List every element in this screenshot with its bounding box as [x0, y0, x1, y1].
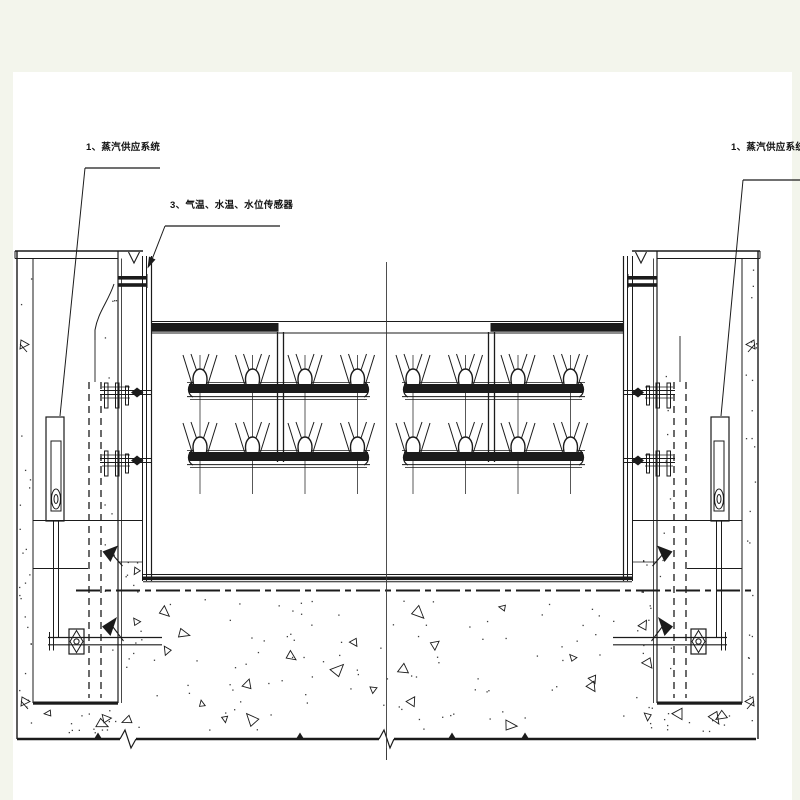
nozzle-dome — [246, 437, 260, 452]
nozzle-dome — [459, 437, 473, 452]
nozzle-dome — [511, 437, 525, 452]
sprayer-pipe — [189, 384, 368, 393]
label-sensors: 3、气温、水温、水位传感器 — [170, 199, 293, 211]
nozzle-dome — [406, 437, 420, 452]
nozzle-dome — [351, 437, 365, 452]
nozzle-dome — [406, 369, 420, 384]
sprayer-pipe — [189, 452, 368, 461]
nozzle-dome — [459, 369, 473, 384]
sprayer-pipe — [404, 384, 583, 393]
nozzle-dome — [564, 437, 578, 452]
label-steam-supply-right: 1、蒸汽供应系统 — [731, 141, 800, 153]
nozzle-dome — [298, 369, 312, 384]
sprayer-pipe — [404, 452, 583, 461]
nozzle-dome — [511, 369, 525, 384]
nozzle-dome — [193, 437, 207, 452]
nozzle-dome — [351, 369, 365, 384]
engineering-drawing-page: 1、蒸汽供应系统 3、气温、水温、水位传感器 1、蒸汽供应系统 — [0, 0, 800, 800]
label-steam-supply-left: 1、蒸汽供应系统 — [86, 141, 160, 153]
steam-header-left — [152, 323, 279, 332]
nozzle-dome — [246, 369, 260, 384]
basin-floor — [143, 577, 632, 581]
steam-header-right — [491, 323, 624, 332]
section-drawing-canvas: 1、蒸汽供应系统 3、气温、水温、水位传感器 1、蒸汽供应系统 — [0, 0, 800, 800]
nozzle-dome — [193, 369, 207, 384]
nozzle-dome — [564, 369, 578, 384]
drawing-paper — [13, 72, 792, 800]
nozzle-dome — [298, 437, 312, 452]
